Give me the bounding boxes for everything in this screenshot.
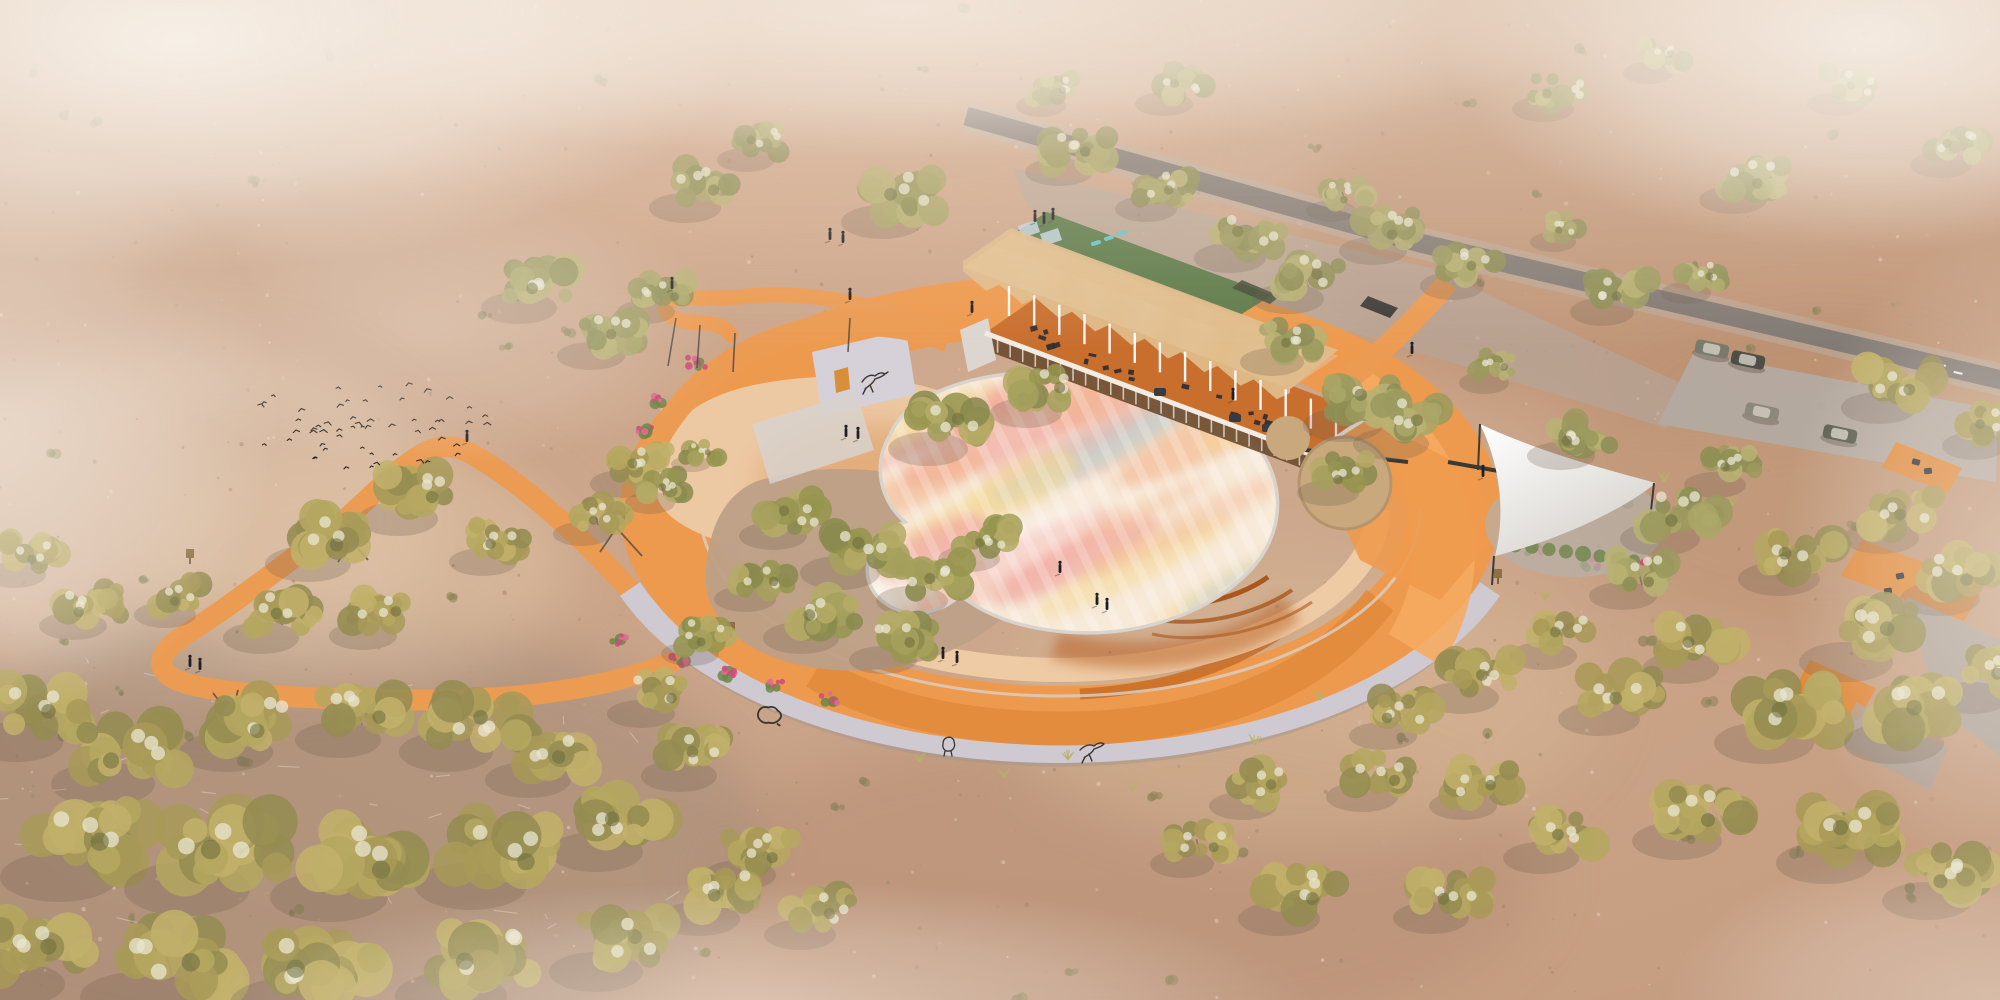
haze-mid-left — [130, 190, 730, 470]
haze-layer — [0, 0, 2000, 1000]
rendering-canvas — [0, 0, 2000, 1000]
architectural-rendering — [0, 0, 2000, 1000]
